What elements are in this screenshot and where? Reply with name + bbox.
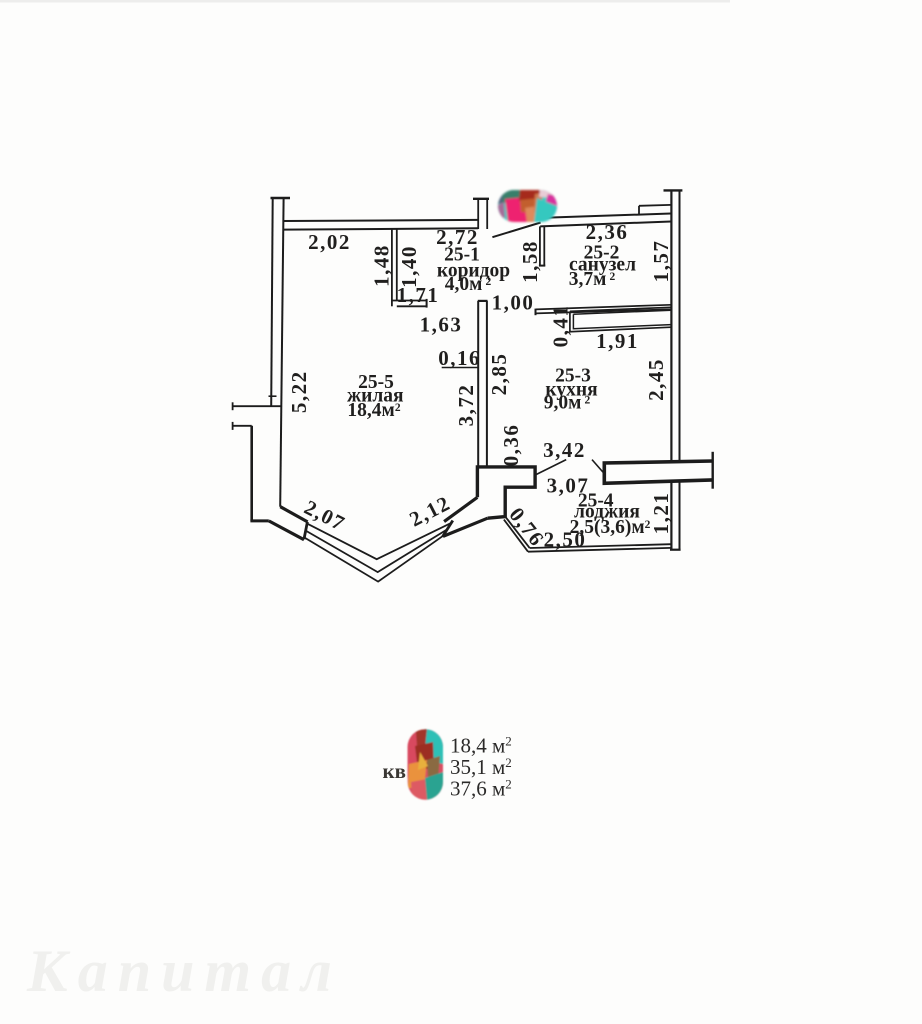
svg-text:0,36: 0,36 bbox=[499, 424, 523, 467]
svg-text:1,48: 1,48 bbox=[370, 244, 394, 287]
svg-text:5,22: 5,22 bbox=[287, 370, 311, 413]
svg-text:1,00: 1,00 bbox=[492, 291, 535, 315]
svg-text:1,71: 1,71 bbox=[397, 283, 440, 307]
svg-text:3,42: 3,42 bbox=[543, 438, 586, 462]
svg-text:18,4 м2: 18,4 м2 bbox=[450, 734, 512, 758]
svg-text:1,63: 1,63 bbox=[420, 313, 463, 337]
svg-text:кв: кв bbox=[383, 759, 406, 783]
svg-text:35,1 м2: 35,1 м2 bbox=[450, 755, 512, 779]
svg-text:0,16: 0,16 bbox=[438, 346, 481, 370]
svg-text:2,45: 2,45 bbox=[644, 358, 668, 401]
svg-text:1,57: 1,57 bbox=[649, 240, 673, 283]
svg-text:3,72: 3,72 bbox=[454, 384, 478, 427]
svg-text:1,21: 1,21 bbox=[649, 492, 673, 535]
svg-text:2,02: 2,02 bbox=[308, 230, 351, 254]
svg-text:1,40: 1,40 bbox=[397, 245, 421, 288]
svg-text:0,41: 0,41 bbox=[549, 305, 573, 348]
svg-text:1,91: 1,91 bbox=[596, 329, 639, 353]
svg-text:37,6 м2: 37,6 м2 bbox=[450, 777, 512, 801]
svg-text:2,50: 2,50 bbox=[544, 528, 587, 552]
svg-text:2,85: 2,85 bbox=[487, 353, 511, 396]
svg-text:Капитал: Капитал bbox=[26, 938, 342, 1004]
svg-text:2,36: 2,36 bbox=[586, 220, 629, 244]
svg-text:1,58: 1,58 bbox=[518, 240, 542, 283]
svg-text:18,4м2: 18,4м2 bbox=[347, 400, 400, 421]
